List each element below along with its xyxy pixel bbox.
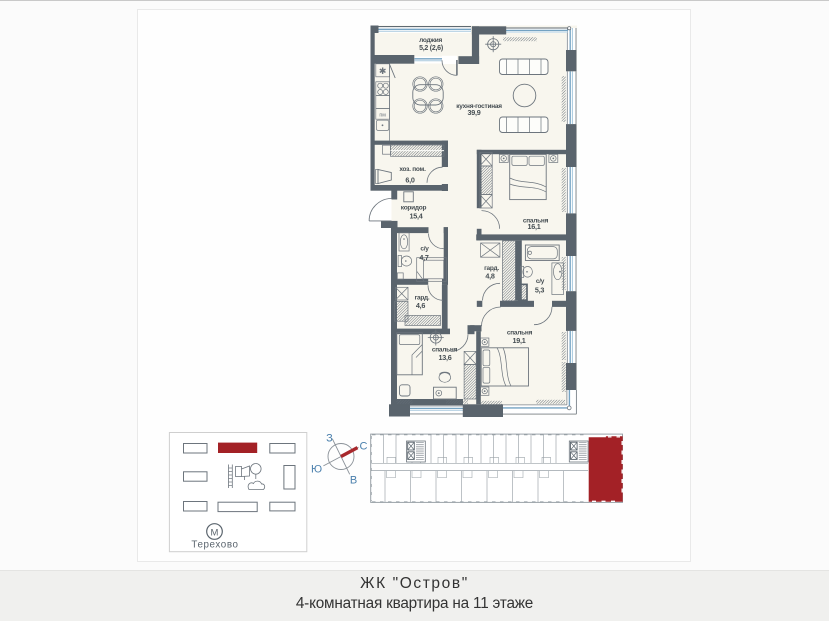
svg-text:Терехово: Терехово [191, 540, 238, 551]
svg-text:13,6: 13,6 [439, 353, 452, 362]
svg-text:6,0: 6,0 [405, 176, 414, 185]
svg-text:4,6: 4,6 [416, 301, 425, 310]
svg-text:пм: пм [379, 113, 386, 119]
svg-text:15,4: 15,4 [410, 212, 423, 221]
svg-text:М: М [211, 527, 219, 538]
svg-text:Ю: Ю [311, 464, 322, 476]
svg-text:5,2 (2,6): 5,2 (2,6) [419, 45, 443, 52]
svg-text:с/у: с/у [420, 246, 429, 253]
svg-text:✱: ✱ [379, 66, 387, 76]
svg-text:В: В [350, 475, 357, 487]
svg-text:З: З [326, 433, 333, 445]
svg-text:лоджия: лоджия [419, 37, 442, 44]
svg-text:19,1: 19,1 [513, 336, 526, 345]
svg-text:4,7: 4,7 [419, 253, 428, 262]
svg-text:16,1: 16,1 [528, 222, 541, 231]
svg-text:39,9: 39,9 [468, 108, 481, 117]
svg-text:хоз. пом.: хоз. пом. [399, 166, 426, 173]
svg-text:С: С [360, 441, 368, 453]
svg-text:4,8: 4,8 [485, 272, 494, 281]
svg-text:5,3: 5,3 [535, 286, 544, 295]
svg-text:с/у: с/у [536, 278, 545, 285]
svg-text:коридор: коридор [401, 205, 427, 212]
